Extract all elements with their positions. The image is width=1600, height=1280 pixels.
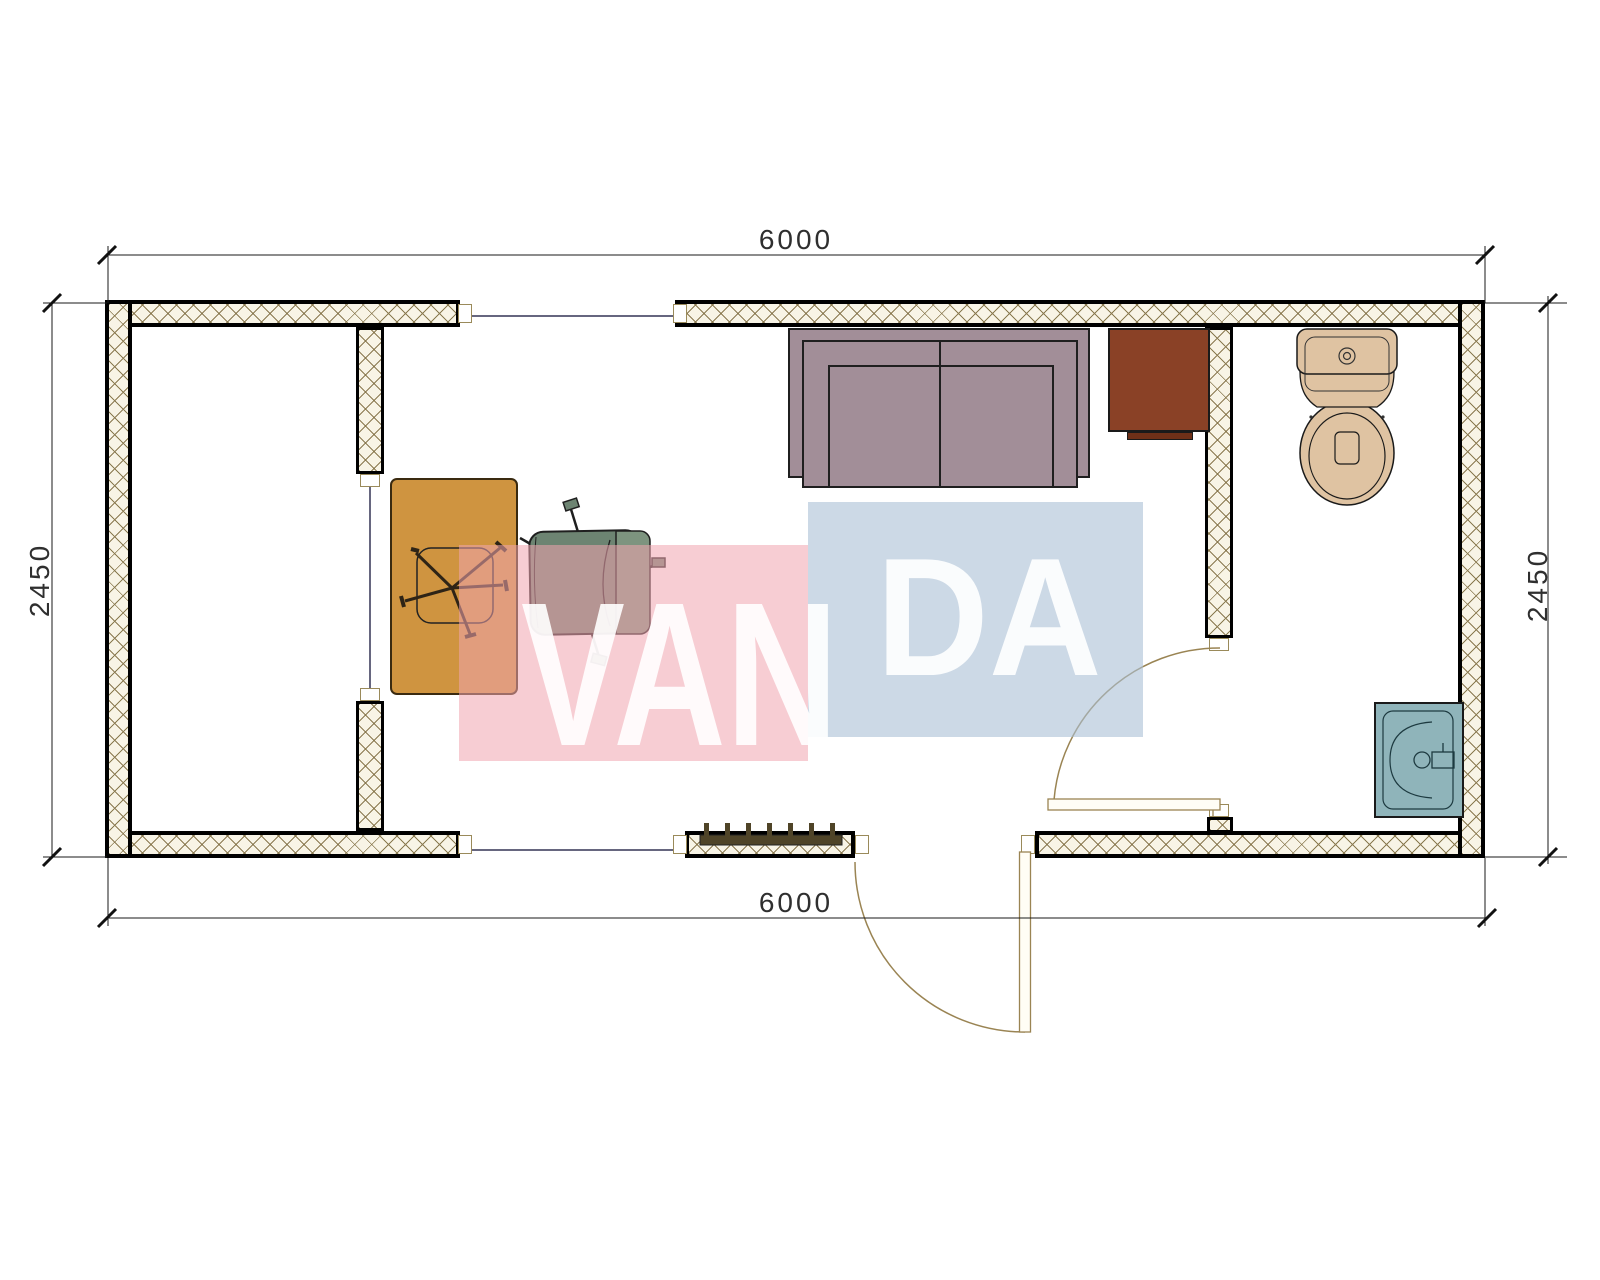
- dimension-label-top: 6000: [696, 224, 896, 256]
- dimension-label-left: 2450: [24, 543, 56, 617]
- floor-plan-canvas: VAN DA 6000 6000 2450 2450: [0, 0, 1600, 1280]
- toilet: [1297, 329, 1397, 505]
- radiator: [700, 823, 842, 845]
- watermark-text-da: DA: [876, 533, 1102, 701]
- dimension-label-right: 2450: [1522, 548, 1554, 622]
- sink: [1375, 703, 1463, 817]
- watermark-text-van: VAN: [521, 572, 838, 777]
- entrance-door: [855, 852, 1031, 1032]
- dimension-label-bottom: 6000: [696, 887, 896, 919]
